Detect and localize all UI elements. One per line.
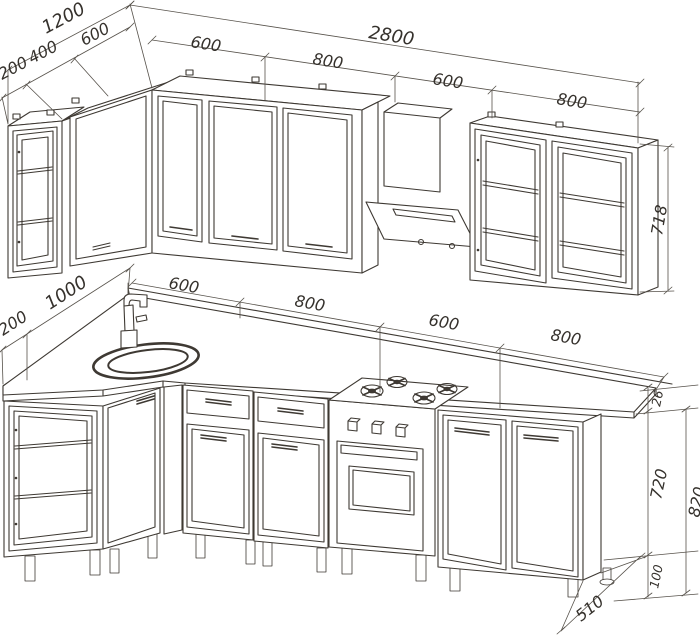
wall-cabinet-glass-800 [470,112,658,295]
dim-label-26: 26 [648,389,666,408]
dim-label-720: 720 [646,467,671,501]
dim-label-800-lower-2: 800 [549,325,582,349]
kitchen-technical-drawing: 1200 200 400 600 2800 600 800 600 800 71… [0,0,700,635]
dim-label-1000: 1000 [41,272,91,315]
dim-label-600-upper-left: 600 [77,18,113,49]
base-corner-door [103,388,160,549]
dim-label-200-upper: 200 [0,52,31,83]
sink-base-door [164,385,182,534]
dim-label-800-upper-2: 800 [555,89,588,113]
hood-duct [384,112,440,192]
dim-label-2800: 2800 [367,22,416,50]
dim-label-600-lower-2: 600 [427,310,460,334]
dim-label-600-upper-1: 600 [189,32,222,56]
dim-label-400-upper: 400 [25,36,61,67]
range-hood [366,103,477,249]
dim-label-600-lower-1: 600 [167,273,200,297]
dim-label-600-upper-2: 600 [431,69,464,93]
wall-cabinet-600-800 [152,70,390,273]
base-corner-glass-cabinet [4,401,103,557]
dim-label-100: 100 [646,563,666,590]
drawing-canvas: 1200 200 400 600 2800 600 800 600 800 71… [0,0,700,635]
base-cabinets [4,377,614,598]
dim-label-820: 820 [684,485,700,519]
countertop [3,283,656,418]
drawer-unit-1 [183,385,253,540]
dim-label-800-lower-1: 800 [293,291,326,315]
hood-visor [366,202,477,247]
base-cabinet-800 [438,410,601,580]
dim-label-800-upper-1: 800 [311,49,344,73]
drawer-unit-2 [254,392,328,548]
